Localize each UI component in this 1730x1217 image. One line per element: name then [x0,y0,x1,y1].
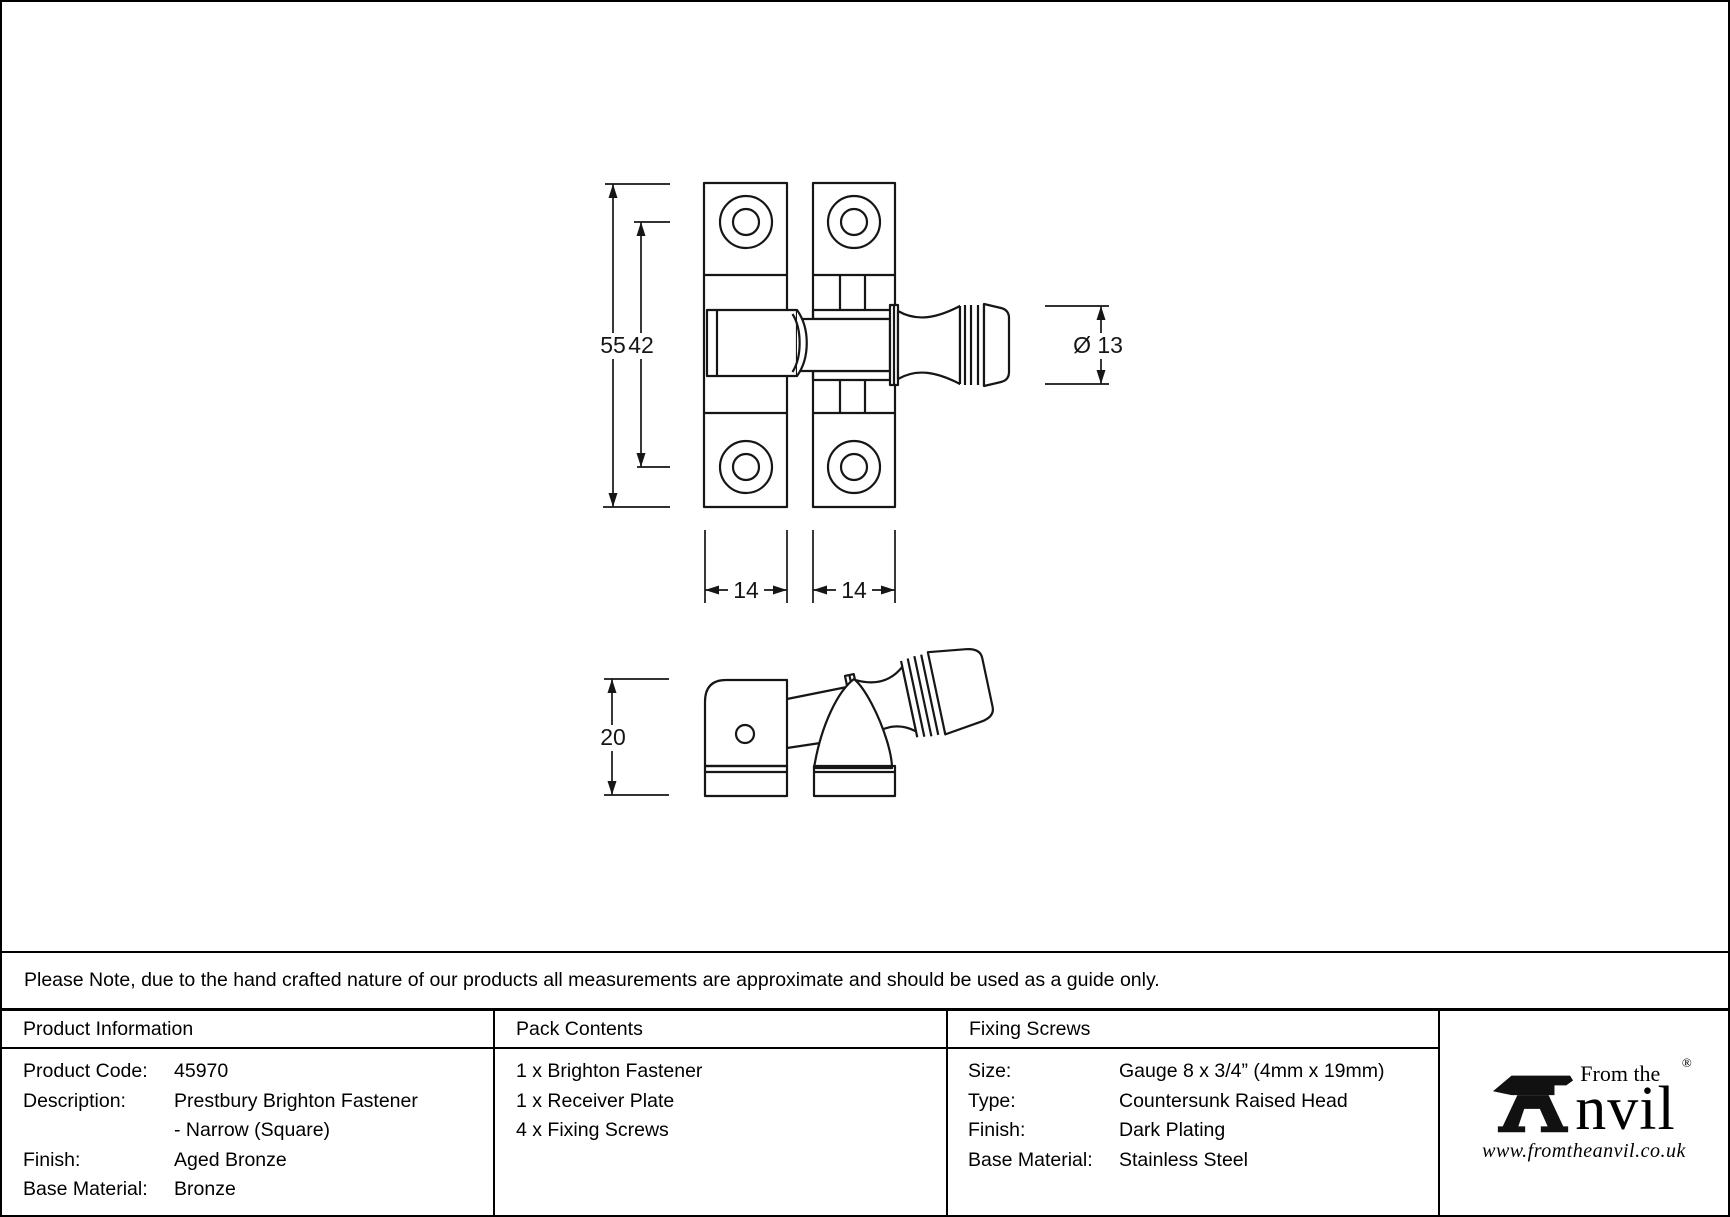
row-label: Size: [968,1060,1119,1083]
pack-contents-body: 1 x Brighton Fastener 1 x Receiver Plate… [495,1049,946,1146]
product-spec-sheet: 55 42 Ø 13 14 14 20 Please Note, due to … [0,0,1730,1217]
dim-overall-height-label: 55 [600,332,626,358]
measurement-note: Please Note, due to the hand crafted nat… [24,969,1160,992]
row-value: Prestbury Brighton Fastener [174,1090,418,1113]
row-value: Countersunk Raised Head [1119,1090,1348,1113]
side-view [705,641,996,796]
product-information-body: Product Code: 45970 Description: Prestbu… [2,1049,493,1205]
row-value: 45970 [174,1060,228,1083]
fixing-screws-column: Fixing Screws Size: Gauge 8 x 3/4” (4mm … [948,1011,1440,1215]
table-row: Base Material: Stainless Steel [948,1146,1438,1176]
row-value: Dark Plating [1119,1119,1225,1142]
slider-housing [707,310,807,376]
row-label: Description: [23,1090,174,1113]
list-item: 4 x Fixing Screws [495,1116,946,1146]
table-row: Type: Countersunk Raised Head [948,1087,1438,1117]
list-item: 1 x Receiver Plate [495,1087,946,1117]
dim-knob-diameter-label: Ø 13 [1073,332,1123,358]
fixing-screws-body: Size: Gauge 8 x 3/4” (4mm x 19mm) Type: … [948,1049,1438,1175]
table-row: Description: Prestbury Brighton Fastener [2,1087,493,1117]
table-row: Finish: Dark Plating [948,1116,1438,1146]
row-label: Finish: [23,1149,174,1172]
table-row: Size: Gauge 8 x 3/4” (4mm x 19mm) [948,1057,1438,1087]
turn-knob [890,304,1009,386]
table-row: Base Material: Bronze [2,1175,493,1205]
row-value: Bronze [174,1178,236,1201]
technical-drawing: 55 42 Ø 13 14 14 20 [2,2,1728,951]
dim-depth-label: 20 [600,724,626,750]
table-row: - Narrow (Square) [2,1116,493,1146]
product-information-header: Product Information [2,1011,493,1049]
row-value: Aged Bronze [174,1149,287,1172]
pack-contents-header: Pack Contents [495,1011,946,1049]
product-information-column: Product Information Product Code: 45970 … [2,1011,495,1215]
dim-left-plate-width-label: 14 [733,577,759,603]
anvil-icon [1492,1070,1574,1134]
row-label: Type: [968,1090,1119,1113]
dim-hole-spacing-label: 42 [628,332,654,358]
side-plate [705,680,787,766]
row-value: - Narrow (Square) [174,1119,330,1142]
spec-table: Product Information Product Code: 45970 … [2,1008,1728,1215]
fixing-screws-header: Fixing Screws [948,1011,1438,1049]
row-value: Stainless Steel [1119,1149,1248,1172]
row-label: Base Material: [968,1149,1119,1172]
pack-contents-column: Pack Contents 1 x Brighton Fastener 1 x … [495,1011,948,1215]
list-item: 1 x Brighton Fastener [495,1057,946,1087]
measurement-note-row: Please Note, due to the hand crafted nat… [2,951,1728,1008]
table-row: Product Code: 45970 [2,1057,493,1087]
dim-right-plate-width-label: 14 [841,577,867,603]
latch-bar [797,319,890,371]
brand-logo: From the nvil ® www.fromtheanvil.co.uk [1440,1011,1728,1215]
row-label: Finish: [968,1119,1119,1142]
row-label: Product Code: [23,1060,174,1083]
logo-website: www.fromtheanvil.co.uk [1482,1140,1686,1163]
row-value: Gauge 8 x 3/4” (4mm x 19mm) [1119,1060,1385,1083]
brand-logo-cell: From the nvil ® www.fromtheanvil.co.uk [1440,1011,1728,1215]
logo-wordmark: nvil [1575,1085,1675,1133]
table-row: Finish: Aged Bronze [2,1146,493,1176]
front-view [704,183,1009,507]
registered-trademark: ® [1682,1055,1692,1071]
row-label: Base Material: [23,1178,174,1201]
